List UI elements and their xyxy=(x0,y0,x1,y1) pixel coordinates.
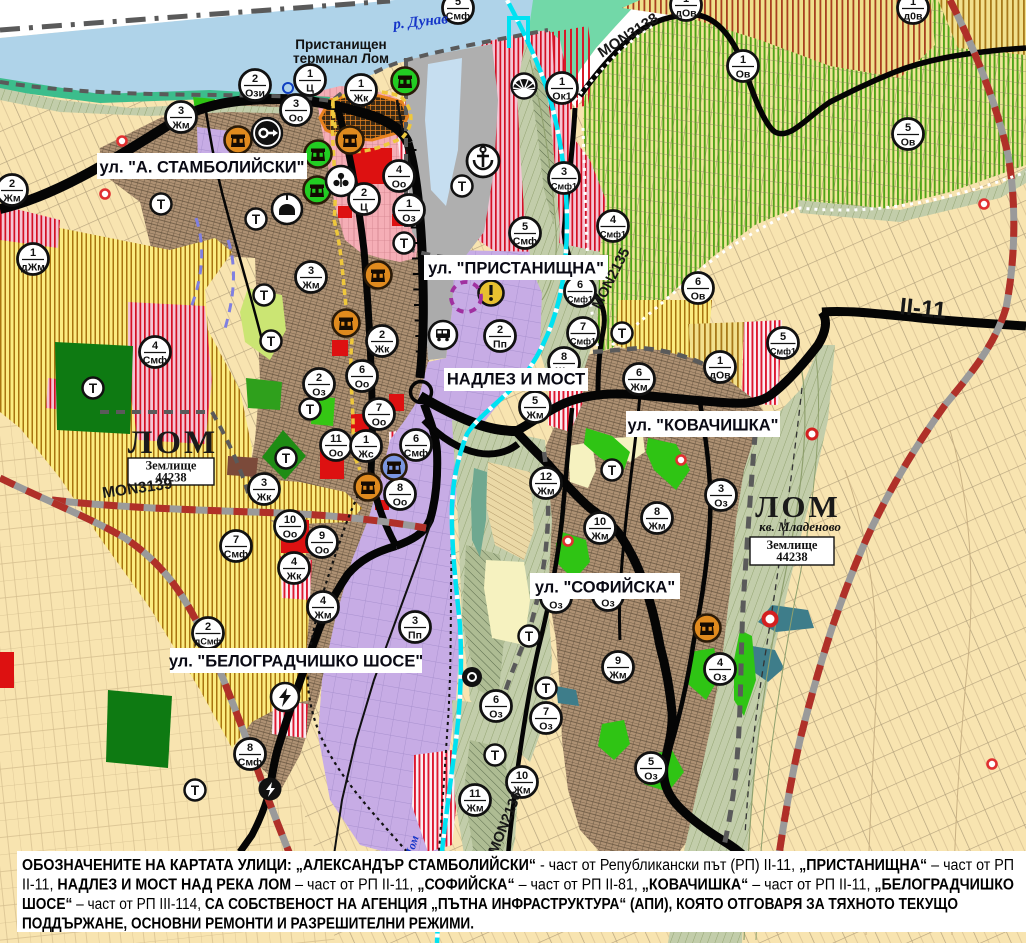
svg-text:кв. Младеново: кв. Младеново xyxy=(759,519,841,534)
svg-text:1: 1 xyxy=(406,198,412,210)
svg-text:ШОСЕ“ – част от РП III-114, СА: ШОСЕ“ – част от РП III-114, СА СОБСТВЕНО… xyxy=(22,896,958,913)
svg-text:5: 5 xyxy=(455,0,461,8)
svg-text:4: 4 xyxy=(320,595,327,607)
svg-text:Смф: Смф xyxy=(143,355,167,367)
svg-text:7: 7 xyxy=(580,321,586,333)
svg-text:Оз: Оз xyxy=(644,771,657,783)
svg-text:3: 3 xyxy=(561,166,567,178)
svg-text:Смф: Смф xyxy=(513,236,537,248)
svg-text:Оо: Оо xyxy=(315,545,330,557)
svg-text:ул. "А. СТАМБОЛИЙСКИ": ул. "А. СТАМБОЛИЙСКИ" xyxy=(100,158,305,177)
svg-text:8: 8 xyxy=(561,351,567,363)
svg-text:Смф1: Смф1 xyxy=(570,337,596,347)
svg-text:Смф: Смф xyxy=(238,757,262,769)
svg-text:Оз: Оз xyxy=(312,387,325,399)
svg-text:Смф1: Смф1 xyxy=(770,347,796,357)
svg-text:3: 3 xyxy=(178,105,184,117)
svg-text:1: 1 xyxy=(683,0,689,5)
svg-text:Пристанищен: Пристанищен xyxy=(295,37,386,52)
svg-text:4: 4 xyxy=(291,556,298,568)
svg-text:Оо: Оо xyxy=(355,379,370,391)
svg-text:Смф: Смф xyxy=(446,11,470,23)
svg-text:Оо: Оо xyxy=(393,497,408,509)
svg-text:Пп: Пп xyxy=(493,339,507,351)
svg-text:2: 2 xyxy=(316,372,322,384)
svg-text:5: 5 xyxy=(522,221,528,233)
svg-text:1: 1 xyxy=(307,68,313,80)
svg-text:7: 7 xyxy=(376,402,382,414)
svg-text:6: 6 xyxy=(493,694,499,706)
svg-text:Жм: Жм xyxy=(647,521,665,533)
svg-text:4: 4 xyxy=(152,340,159,352)
svg-text:10: 10 xyxy=(284,514,296,526)
svg-text:Жм: Жм xyxy=(590,531,608,543)
svg-text:Т: Т xyxy=(608,463,617,478)
svg-text:7: 7 xyxy=(543,706,549,718)
svg-text:Оз: Оз xyxy=(489,709,502,721)
svg-text:Т: Т xyxy=(260,288,269,303)
svg-text:Пп: Пп xyxy=(408,630,422,642)
svg-text:терминал Лом: терминал Лом xyxy=(293,51,389,66)
svg-text:44238: 44238 xyxy=(776,550,807,564)
svg-text:Оо: Оо xyxy=(283,529,298,541)
svg-text:6: 6 xyxy=(636,367,642,379)
svg-text:Оз: Оз xyxy=(601,598,614,610)
svg-text:Оо: Оо xyxy=(289,113,304,125)
svg-text:Жк: Жк xyxy=(286,571,302,583)
svg-text:11: 11 xyxy=(330,433,342,445)
svg-text:1: 1 xyxy=(559,76,565,88)
svg-text:5: 5 xyxy=(780,331,786,343)
svg-text:5: 5 xyxy=(532,395,538,407)
svg-text:дЖм: дЖм xyxy=(21,262,45,274)
svg-text:2: 2 xyxy=(497,324,503,336)
svg-text:Т: Т xyxy=(306,402,315,417)
svg-text:10: 10 xyxy=(594,516,606,528)
svg-text:9: 9 xyxy=(319,530,325,542)
svg-text:ул. "БЕЛОГРАДЧИШКО ШОСЕ": ул. "БЕЛОГРАДЧИШКО ШОСЕ" xyxy=(169,653,423,671)
svg-text:Т: Т xyxy=(267,334,276,349)
svg-text:2: 2 xyxy=(205,621,211,633)
svg-text:II-11, НАДЛЕЗ И МОСТ НАД РЕКА: II-11, НАДЛЕЗ И МОСТ НАД РЕКА ЛОМ – част… xyxy=(22,876,1014,894)
svg-text:8: 8 xyxy=(247,742,253,754)
svg-text:6: 6 xyxy=(413,433,419,445)
svg-text:2: 2 xyxy=(9,178,15,190)
svg-text:Оо: Оо xyxy=(372,417,387,429)
svg-text:1: 1 xyxy=(30,247,36,259)
svg-text:дОв: дОв xyxy=(675,8,697,20)
svg-text:4: 4 xyxy=(396,164,403,176)
svg-text:4: 4 xyxy=(610,214,617,226)
svg-text:3: 3 xyxy=(412,615,418,627)
svg-text:ул. "ПРИСТАНИЩНА": ул. "ПРИСТАНИЩНА" xyxy=(428,260,604,278)
svg-text:Т: Т xyxy=(491,748,500,763)
svg-text:Т: Т xyxy=(282,451,291,466)
svg-text:1: 1 xyxy=(910,0,916,8)
svg-text:4: 4 xyxy=(717,657,724,669)
svg-text:Т: Т xyxy=(400,236,409,251)
svg-text:Ози: Ози xyxy=(245,88,265,100)
svg-text:5: 5 xyxy=(648,756,654,768)
svg-text:Жм: Жм xyxy=(608,670,626,682)
svg-text:Смф1: Смф1 xyxy=(551,182,577,192)
svg-text:ОБОЗНАЧЕНИТЕ НА КАРТАТА УЛИЦИ:: ОБОЗНАЧЕНИТЕ НА КАРТАТА УЛИЦИ: „АЛЕКСАНД… xyxy=(22,856,1014,874)
svg-text:6: 6 xyxy=(577,279,583,291)
svg-text:Оо: Оо xyxy=(329,448,344,460)
svg-text:Жк: Жк xyxy=(353,93,369,105)
svg-text:1: 1 xyxy=(740,54,746,66)
svg-text:2: 2 xyxy=(252,73,258,85)
svg-text:Смф: Смф xyxy=(404,448,428,460)
svg-text:ул. "КОВАЧИШКА": ул. "КОВАЧИШКА" xyxy=(628,417,779,435)
svg-text:Смф1: Смф1 xyxy=(600,230,626,240)
svg-text:Жм: Жм xyxy=(313,610,331,622)
svg-text:Жм: Жм xyxy=(301,280,319,292)
svg-text:Т: Т xyxy=(525,629,534,644)
svg-text:Жм: Жм xyxy=(465,803,483,815)
svg-text:Т: Т xyxy=(89,381,98,396)
svg-text:Т: Т xyxy=(252,212,261,227)
svg-text:Т: Т xyxy=(618,326,627,341)
svg-text:Оо: Оо xyxy=(392,179,407,191)
svg-text:3: 3 xyxy=(718,483,724,495)
svg-text:2: 2 xyxy=(361,187,367,199)
svg-text:6: 6 xyxy=(359,364,365,376)
svg-text:Жм: Жм xyxy=(525,410,543,422)
svg-text:Оз: Оз xyxy=(549,600,562,612)
svg-text:6: 6 xyxy=(695,276,701,288)
svg-text:Ц: Ц xyxy=(306,83,314,95)
svg-text:3: 3 xyxy=(293,98,299,110)
svg-text:Т: Т xyxy=(458,179,467,194)
svg-text:Ов: Ов xyxy=(901,137,916,149)
svg-text:Ц: Ц xyxy=(360,202,368,214)
svg-text:Оз: Оз xyxy=(402,213,415,225)
svg-text:1: 1 xyxy=(363,434,369,446)
svg-text:НАДЛЕЗ И МОСТ: НАДЛЕЗ И МОСТ xyxy=(447,371,585,389)
svg-text:ул. "СОФИЙСКА": ул. "СОФИЙСКА" xyxy=(535,578,675,597)
svg-text:Жс: Жс xyxy=(357,449,373,461)
svg-text:9: 9 xyxy=(615,655,621,667)
svg-text:Жк: Жк xyxy=(374,344,390,356)
svg-text:Жм: Жм xyxy=(171,120,189,132)
svg-text:8: 8 xyxy=(397,482,403,494)
svg-text:Ов: Ов xyxy=(691,291,706,303)
svg-text:7: 7 xyxy=(233,534,239,546)
svg-text:Т: Т xyxy=(542,681,551,696)
svg-text:8: 8 xyxy=(654,506,660,518)
svg-text:1: 1 xyxy=(358,78,364,90)
svg-text:Жм: Жм xyxy=(536,486,554,498)
svg-text:2: 2 xyxy=(379,329,385,341)
svg-text:3: 3 xyxy=(308,265,314,277)
svg-text:ЛОМ: ЛОМ xyxy=(128,425,218,461)
svg-text:3: 3 xyxy=(261,477,267,489)
svg-text:II-11: II-11 xyxy=(898,293,947,325)
svg-text:ПОДДЪРЖАНЕ, ОСНОВНИ РЕМОНТИ И: ПОДДЪРЖАНЕ, ОСНОВНИ РЕМОНТИ И РАЗРЕШИТЕЛ… xyxy=(22,916,474,933)
svg-text:Оз: Оз xyxy=(713,672,726,684)
svg-text:1: 1 xyxy=(717,355,723,367)
svg-text:Ок1: Ок1 xyxy=(552,91,571,103)
svg-text:дСмф: дСмф xyxy=(195,637,222,647)
svg-text:дОв: дОв xyxy=(709,370,731,382)
svg-text:Ов: Ов xyxy=(736,69,751,81)
svg-text:д0в: д0в xyxy=(904,11,924,23)
svg-text:Т: Т xyxy=(191,783,200,798)
svg-text:Жм: Жм xyxy=(2,193,20,205)
svg-text:Смф: Смф xyxy=(224,549,248,561)
svg-text:10: 10 xyxy=(516,770,528,782)
svg-text:Жм: Жм xyxy=(629,382,647,394)
svg-text:12: 12 xyxy=(540,471,552,483)
svg-text:Оз: Оз xyxy=(714,498,727,510)
svg-text:Оз: Оз xyxy=(539,721,552,733)
svg-text:5: 5 xyxy=(905,122,911,134)
svg-text:Жк: Жк xyxy=(256,492,272,504)
svg-text:Т: Т xyxy=(157,197,166,212)
svg-text:11: 11 xyxy=(469,788,481,800)
